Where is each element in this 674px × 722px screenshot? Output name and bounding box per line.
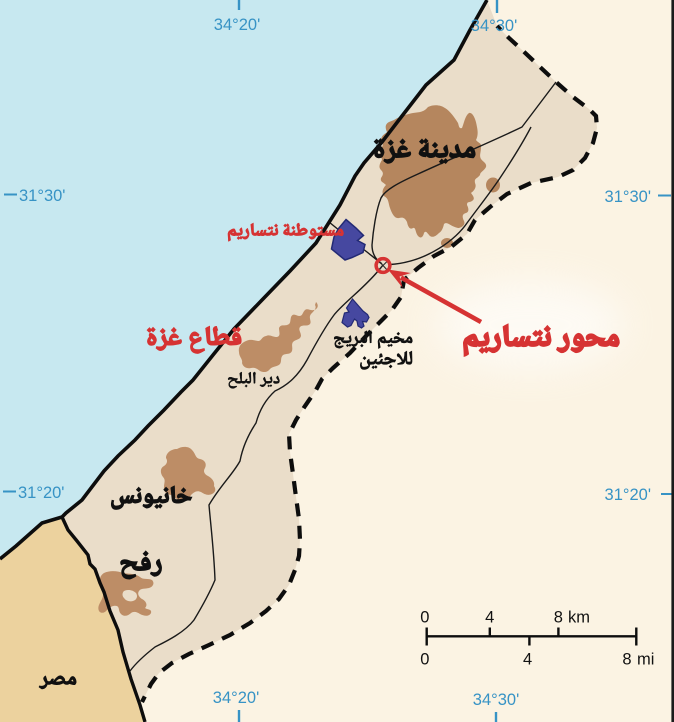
svg-text:31°30': 31°30' xyxy=(605,188,651,206)
svg-text:4: 4 xyxy=(523,651,532,669)
svg-text:km: km xyxy=(568,609,590,627)
svg-text:4: 4 xyxy=(485,609,494,627)
svg-text:34°30': 34°30' xyxy=(473,691,519,709)
svg-text:31°30': 31°30' xyxy=(19,187,65,205)
svg-text:8: 8 xyxy=(554,609,563,627)
svg-text:8: 8 xyxy=(622,651,631,669)
svg-text:34°30': 34°30' xyxy=(471,17,517,35)
svg-text:34°20': 34°20' xyxy=(213,689,259,707)
svg-text:0: 0 xyxy=(420,609,429,627)
svg-text:0: 0 xyxy=(420,651,429,669)
svg-text:mi: mi xyxy=(637,651,654,669)
svg-text:31°20': 31°20' xyxy=(18,484,64,502)
svg-text:31°20': 31°20' xyxy=(605,486,651,504)
svg-text:34°20': 34°20' xyxy=(214,16,260,34)
